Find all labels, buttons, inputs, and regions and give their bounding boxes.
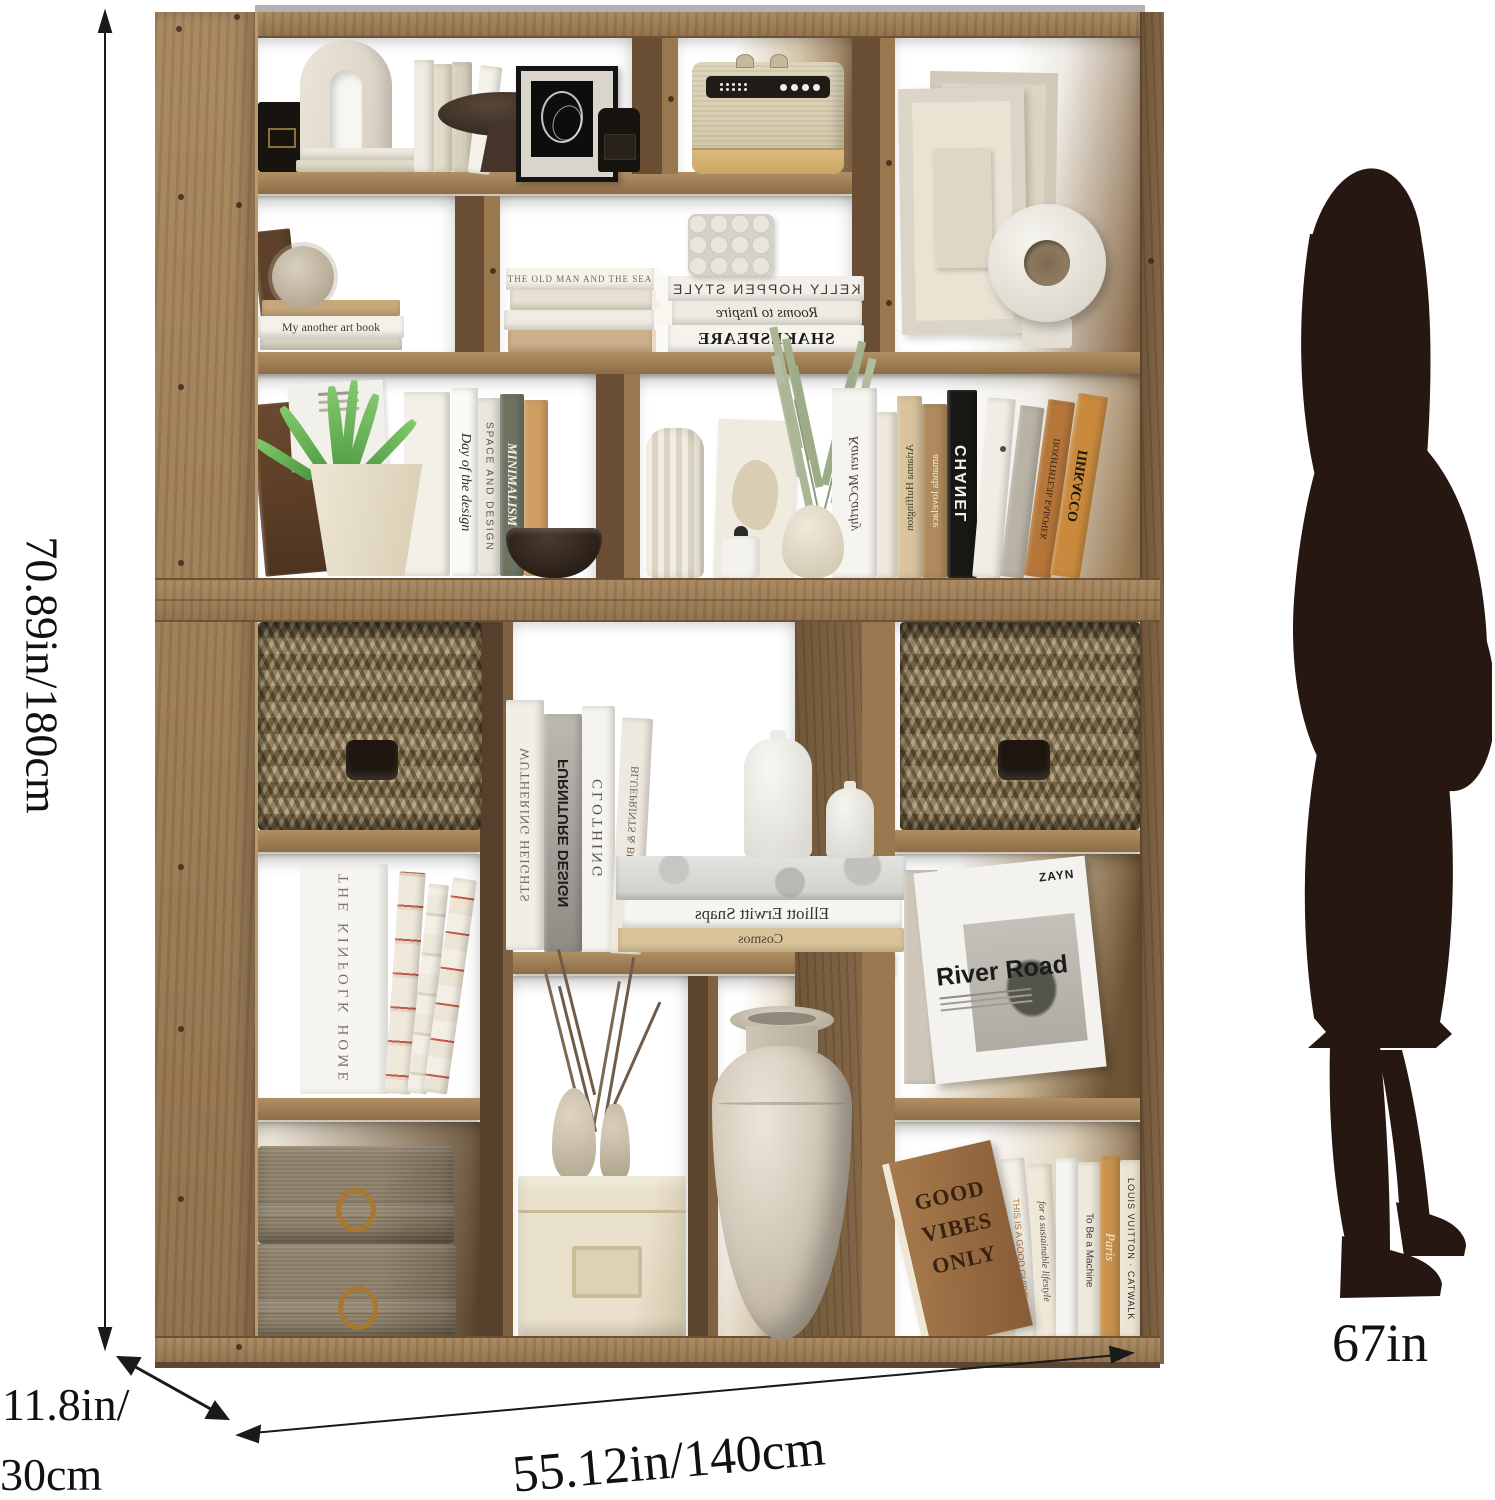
depth-dimension-label-line2: 30cm bbox=[0, 1448, 102, 1500]
dimension-lines bbox=[0, 0, 1495, 1500]
person-height-label: 67in bbox=[1305, 1312, 1455, 1374]
depth-dimension-label-line1: 11.8in/ bbox=[2, 1378, 129, 1431]
product-dimension-diagram: My another art book THE OLD MAN AND THE … bbox=[0, 0, 1495, 1500]
height-dimension-text: 70.89in/180cm bbox=[16, 536, 69, 813]
